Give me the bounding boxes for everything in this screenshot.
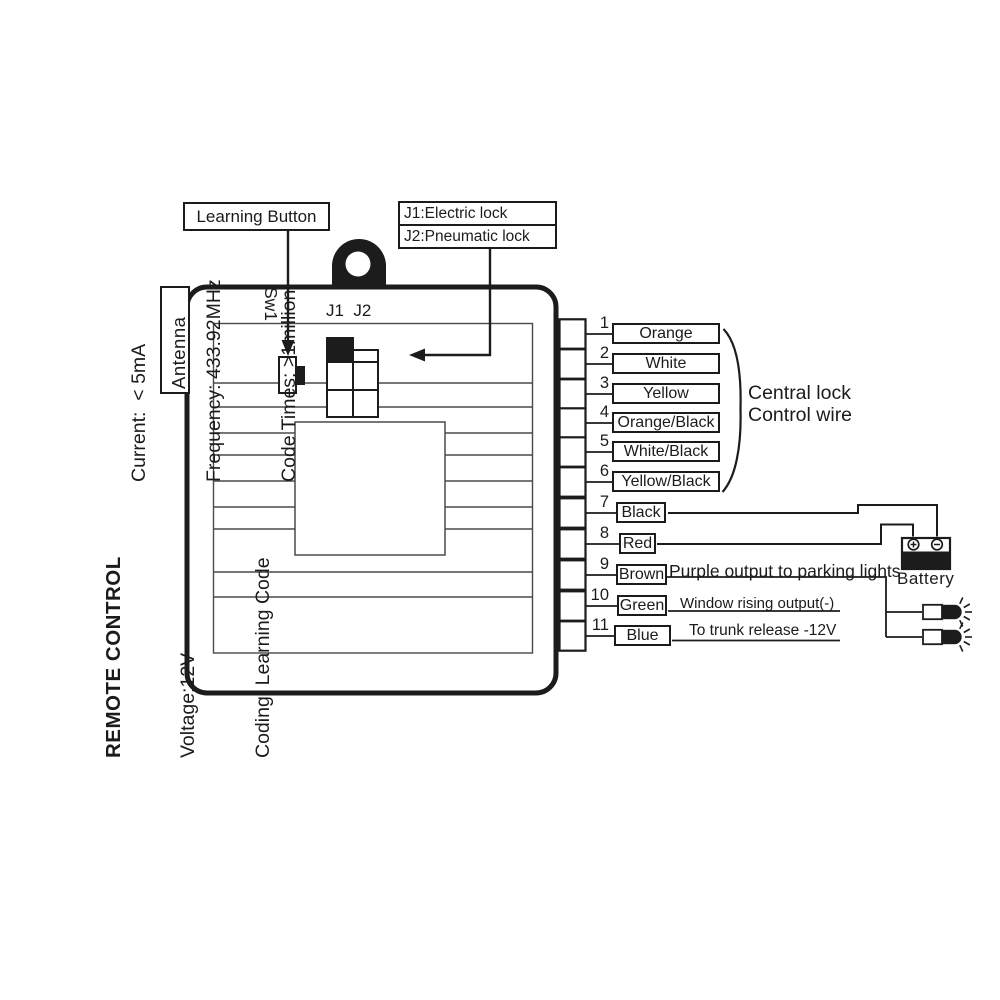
wire-4-number: 4 [577, 403, 609, 422]
learning-button-callout: Learning Button [183, 202, 330, 231]
central-lock-line1: Central lock [748, 382, 851, 404]
wire-9-note: Purple output to parking lights [669, 561, 901, 582]
wire-11-number: 11 [577, 616, 609, 635]
battery-label: Battery [897, 569, 954, 589]
wire-10-number: 10 [577, 586, 609, 605]
jumper-callout-line1: J1:Electric lock [400, 203, 555, 226]
spec-coding: Coding: Learning Code [251, 556, 276, 758]
wire-6-color-label: Yellow/Black [612, 471, 720, 492]
wire-6-number: 6 [577, 462, 609, 481]
battery-icon [902, 538, 950, 569]
product-title: REMOTE CONTROL [101, 556, 126, 758]
central-lock-line2: Control wire [748, 404, 852, 426]
wire-1-color-label: Orange [612, 323, 720, 344]
wire-11-note: To trunk release -12V [689, 622, 836, 640]
wire-8-number: 8 [577, 524, 609, 543]
parking-light-icons [923, 597, 972, 651]
wire7-route [668, 505, 937, 537]
wire-8-color-label: Red [619, 533, 656, 554]
wire-2-color-label: White [612, 353, 720, 374]
wire-2-number: 2 [577, 344, 609, 363]
wire-11-color-label: Blue [614, 625, 671, 646]
wire-5-number: 5 [577, 432, 609, 451]
bulb-icon [923, 597, 972, 626]
wire-3-number: 3 [577, 374, 609, 393]
spec-voltage: Voltage:12V [176, 556, 201, 758]
wire-1-number: 1 [577, 314, 609, 333]
bulb-icon [923, 622, 972, 651]
wire8-route [657, 525, 913, 545]
diagram-line-art [0, 0, 1000, 1000]
sw1-label: Sw1 [260, 287, 281, 321]
wire-7-color-label: Black [616, 502, 666, 523]
jumper-callout: J1:Electric lock J2:Pneumatic lock [398, 201, 557, 249]
antenna-label: Antenna [166, 317, 191, 389]
jumper-callout-line2: J2:Pneumatic lock [400, 226, 555, 247]
wire-9-number: 9 [577, 555, 609, 574]
wiring-diagram: Current: < 5mA Frequency: 433.92MHz Code… [0, 0, 1000, 1000]
central-lock-brace [723, 329, 741, 492]
jumper-pins-label: J1 J2 [326, 301, 371, 321]
wire-9-color-label: Brown [616, 564, 667, 585]
wire-7-number: 7 [577, 493, 609, 512]
wire-4-color-label: Orange/Black [612, 412, 720, 433]
spec-current: Current: < 5mA [127, 279, 152, 482]
central-lock-annotation: Central lock Control wire [748, 383, 852, 426]
wire-10-color-label: Green [617, 595, 667, 616]
wire-10-note: Window rising output(-) [680, 595, 834, 612]
specs-block: Current: < 5mA Frequency: 433.92MHz Code… [77, 279, 352, 482]
spec-frequency: Frequency: 433.92MHz [202, 279, 227, 482]
wire-3-color-label: Yellow [612, 383, 720, 404]
title-block: REMOTE CONTROL Voltage:12V Coding: Learn… [51, 556, 326, 758]
wire-5-color-label: White/Black [612, 441, 720, 462]
